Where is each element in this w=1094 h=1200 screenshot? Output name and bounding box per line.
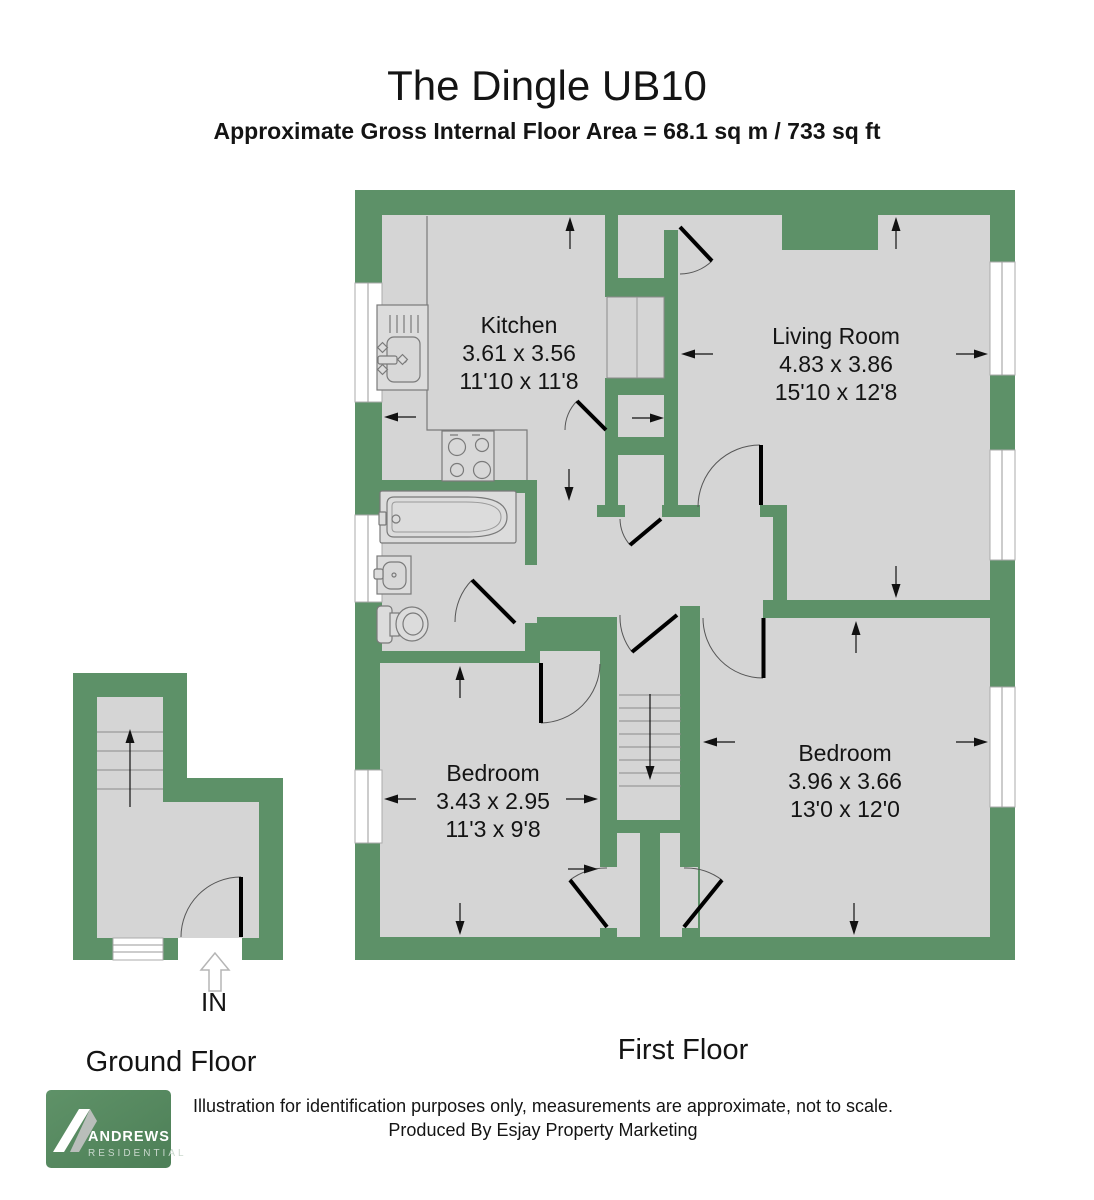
bedroom-right-metric: 3.96 x 3.66 (788, 768, 902, 794)
entrance-opening (178, 938, 242, 960)
living-room-name: Living Room (772, 323, 900, 349)
bedroom-left-imperial: 11'3 x 9'8 (445, 816, 540, 842)
bedroom-right-label: Bedroom 3.96 x 3.66 13'0 x 12'0 (788, 740, 902, 822)
bedroom-right-name: Bedroom (798, 740, 891, 766)
bedroom-left-metric: 3.43 x 2.95 (436, 788, 550, 814)
kitchen-imperial: 11'10 x 11'8 (459, 368, 578, 394)
kitchen-metric: 3.61 x 3.56 (462, 340, 576, 366)
page-subtitle: Approximate Gross Internal Floor Area = … (214, 118, 881, 144)
andrews-logo: ANDREWS RESIDENTIAL (46, 1090, 187, 1168)
cooker-icon (442, 431, 494, 481)
hall-cupboard (607, 297, 664, 378)
kitchen-name: Kitchen (481, 312, 558, 338)
floorplan-canvas: The Dingle UB10 Approximate Gross Intern… (0, 0, 1094, 1200)
bedroom-left-window (355, 770, 382, 843)
living-room-imperial: 15'10 x 12'8 (775, 379, 898, 405)
living-room-window-2 (990, 450, 1015, 560)
ground-floor-label: Ground Floor (86, 1046, 257, 1078)
disclaimer-line1: Illustration for identification purposes… (193, 1096, 893, 1116)
living-room-window-1 (990, 262, 1015, 375)
bedroom-right-imperial: 13'0 x 12'0 (790, 796, 900, 822)
logo-division-text: RESIDENTIAL (88, 1148, 187, 1159)
logo-brand-text: ANDREWS (88, 1129, 170, 1145)
floorplan-page: The Dingle UB10 Approximate Gross Intern… (0, 0, 1094, 1200)
page-title: The Dingle UB10 (387, 62, 707, 109)
bedroom-left-name: Bedroom (446, 760, 539, 786)
disclaimer-line2: Produced By Esjay Property Marketing (388, 1120, 697, 1140)
first-floor-plan: Kitchen 3.61 x 3.56 11'10 x 11'8 Living … (355, 190, 1015, 960)
toilet-icon (377, 606, 428, 643)
living-room-metric: 4.83 x 3.86 (779, 351, 893, 377)
bathtub-icon (379, 491, 516, 543)
first-floor-label: First Floor (618, 1034, 749, 1066)
bedroom-right-window (990, 687, 1015, 807)
ground-floor-window (113, 938, 163, 960)
living-room-label: Living Room 4.83 x 3.86 15'10 x 12'8 (772, 323, 900, 405)
entrance-in-label: IN (201, 987, 227, 1017)
kitchen-sink-icon (377, 305, 428, 390)
bedroom-left-label: Bedroom 3.43 x 2.95 11'3 x 9'8 (436, 760, 550, 842)
basin-icon (374, 556, 411, 594)
